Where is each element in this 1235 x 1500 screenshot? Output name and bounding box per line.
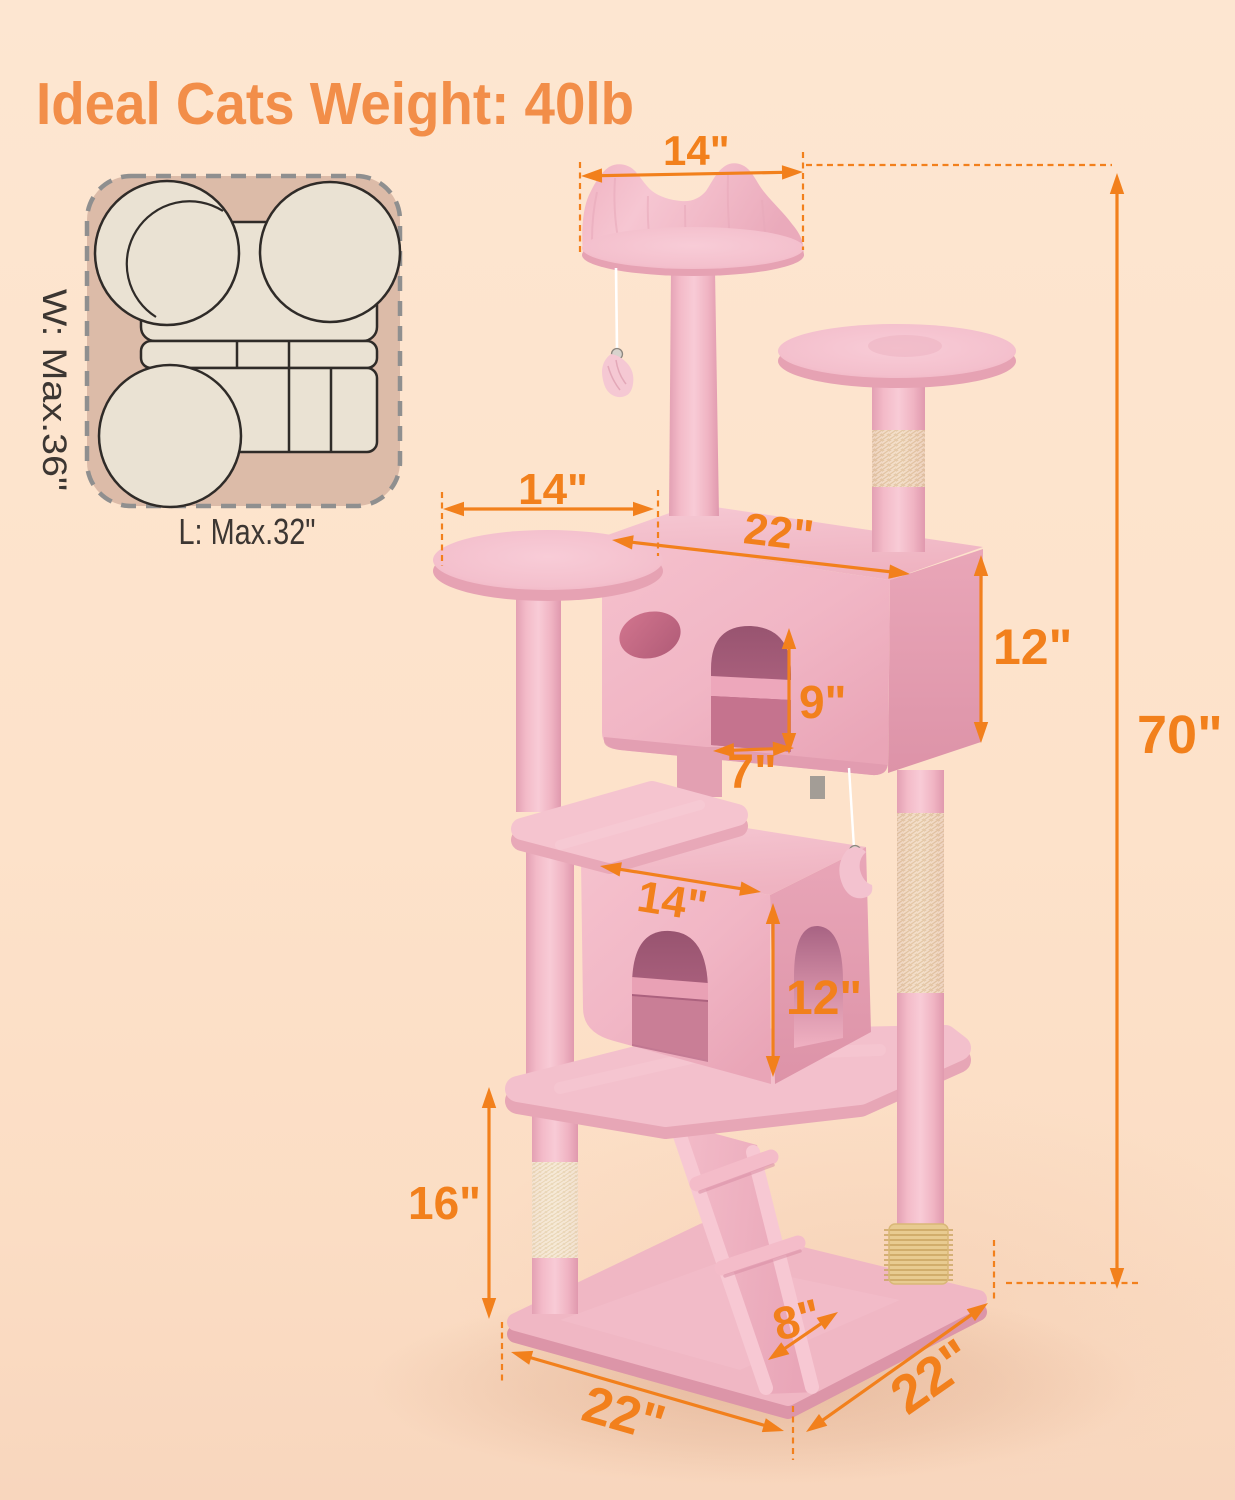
svg-text:70": 70" xyxy=(1137,705,1223,765)
svg-text:7": 7" xyxy=(727,746,776,799)
svg-text:W: Max.36": W: Max.36" xyxy=(35,289,73,491)
svg-text:12": 12" xyxy=(786,972,862,1025)
svg-text:Ideal Cats Weight: 40lb: Ideal Cats Weight: 40lb xyxy=(36,71,634,137)
svg-text:16": 16" xyxy=(408,1177,481,1229)
svg-text:14": 14" xyxy=(663,127,730,174)
svg-text:L: Max.32": L: Max.32" xyxy=(179,511,316,552)
svg-text:12": 12" xyxy=(993,619,1072,675)
svg-text:9": 9" xyxy=(799,676,846,728)
svg-text:14": 14" xyxy=(518,465,588,514)
svg-text:22": 22" xyxy=(741,504,816,561)
